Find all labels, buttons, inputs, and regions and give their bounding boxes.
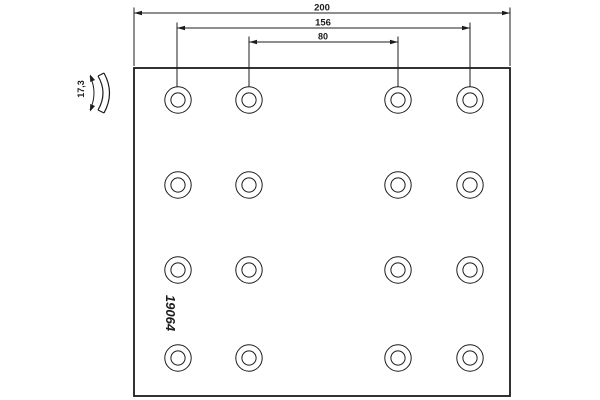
lining-section-arc-icon (98, 73, 110, 113)
dim-arrow-right-icon (390, 40, 398, 44)
dim-arrow-left-icon (177, 26, 185, 30)
dim-label-inner-hole-span: 80 (318, 32, 328, 42)
plate-outline (134, 68, 510, 396)
dim-label-overall-width: 200 (314, 3, 330, 14)
part-number-label: 19064 (163, 295, 178, 332)
dim-arrow-right-icon (462, 26, 470, 30)
dim-arrow-left-icon (249, 40, 257, 44)
thickness-symbol: 17,3 (76, 73, 110, 113)
dim-arrow-right-icon (502, 11, 510, 15)
dim-label-outer-hole-span: 156 (315, 18, 331, 29)
curved-arrow-bottom-head-icon (88, 104, 95, 112)
curved-arrow-top-head-icon (88, 74, 95, 82)
technical-drawing-canvas: 200 156 80 17,3 19064 (0, 0, 600, 400)
thickness-label: 17,3 (76, 80, 86, 98)
dim-arrow-left-icon (134, 11, 142, 15)
